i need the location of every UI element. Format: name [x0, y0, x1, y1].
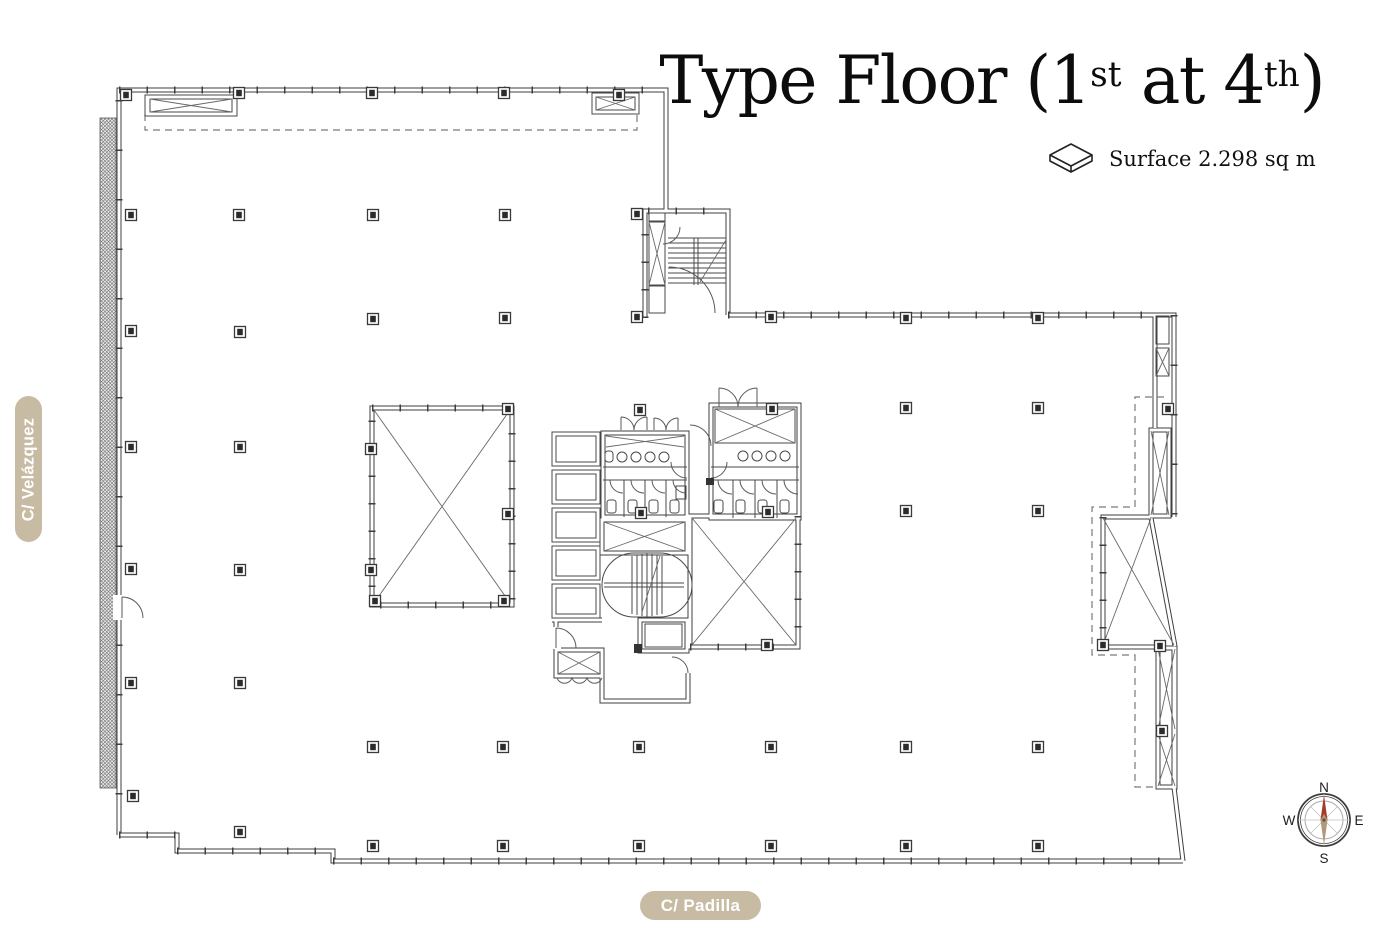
column [500, 313, 511, 324]
storage-cells [552, 432, 600, 618]
column [503, 404, 514, 415]
column [367, 88, 378, 99]
column [368, 210, 379, 221]
column [126, 210, 137, 221]
entrance-canopy [557, 652, 602, 683]
column [121, 90, 132, 101]
column [499, 596, 510, 607]
skylight-left [145, 95, 237, 116]
column [1163, 404, 1174, 415]
column [235, 442, 246, 453]
column [1033, 506, 1044, 517]
column [766, 312, 777, 323]
column [901, 742, 912, 753]
column [126, 564, 137, 575]
toilets [607, 500, 789, 513]
column [632, 209, 643, 220]
column [635, 405, 646, 416]
column [1033, 313, 1044, 324]
atrium-void [374, 410, 510, 603]
column [368, 742, 379, 753]
column [1033, 841, 1044, 852]
column [901, 841, 912, 852]
column-grid [121, 88, 1174, 852]
column [235, 565, 246, 576]
service-room [645, 624, 682, 647]
column [498, 841, 509, 852]
column [499, 88, 510, 99]
floor-plan [0, 0, 1400, 933]
column [234, 88, 245, 99]
column [901, 506, 912, 517]
column [498, 742, 509, 753]
page: Type Floor (1st at 4th) Surface 2.298 sq… [0, 0, 1400, 933]
column [634, 742, 645, 753]
compass-west-label: W [1283, 813, 1296, 828]
compass-east-label: E [1354, 813, 1363, 828]
sinks [605, 451, 790, 462]
column [366, 444, 377, 455]
column [503, 509, 514, 520]
central-stair [602, 553, 692, 617]
column [636, 508, 647, 519]
column [766, 742, 777, 753]
compass-south-label: S [1319, 851, 1328, 866]
column [128, 791, 139, 802]
compass-rose-icon: N S W E [1281, 762, 1367, 878]
column [368, 841, 379, 852]
facade-hatch-strip [100, 118, 116, 788]
column [126, 326, 137, 337]
column [126, 678, 137, 689]
column [235, 827, 246, 838]
door-gap [667, 311, 715, 319]
column [370, 596, 381, 607]
column [766, 841, 777, 852]
elevator-shaft [649, 213, 665, 313]
column [235, 327, 246, 338]
column [366, 565, 377, 576]
column [235, 678, 246, 689]
door-swing-arc [122, 597, 143, 618]
column [1155, 641, 1166, 652]
column [901, 403, 912, 414]
window-mullions [119, 90, 1183, 861]
column [1033, 403, 1044, 414]
walls [119, 90, 1183, 861]
x-void-room [692, 518, 796, 645]
column [767, 404, 778, 415]
compass-north-label: N [1319, 780, 1329, 795]
column [368, 314, 379, 325]
column [234, 210, 245, 221]
shaft-x [604, 522, 685, 551]
column [614, 90, 625, 101]
door-swing-arc [610, 480, 798, 494]
stair-treads [668, 238, 726, 285]
column [1033, 742, 1044, 753]
column [1098, 640, 1109, 651]
column [763, 507, 774, 518]
column [126, 442, 137, 453]
column [632, 312, 643, 323]
column [901, 313, 912, 324]
top-stair-core [649, 213, 726, 313]
vent-shaft [606, 436, 684, 447]
street-label-velazquez: C/ Velázquez [15, 396, 42, 542]
overhang-dashed-lines [145, 114, 1164, 787]
street-label-padilla: C/ Padilla [640, 891, 761, 920]
column [762, 640, 773, 651]
column [1157, 726, 1168, 737]
column [634, 841, 645, 852]
column [500, 210, 511, 221]
